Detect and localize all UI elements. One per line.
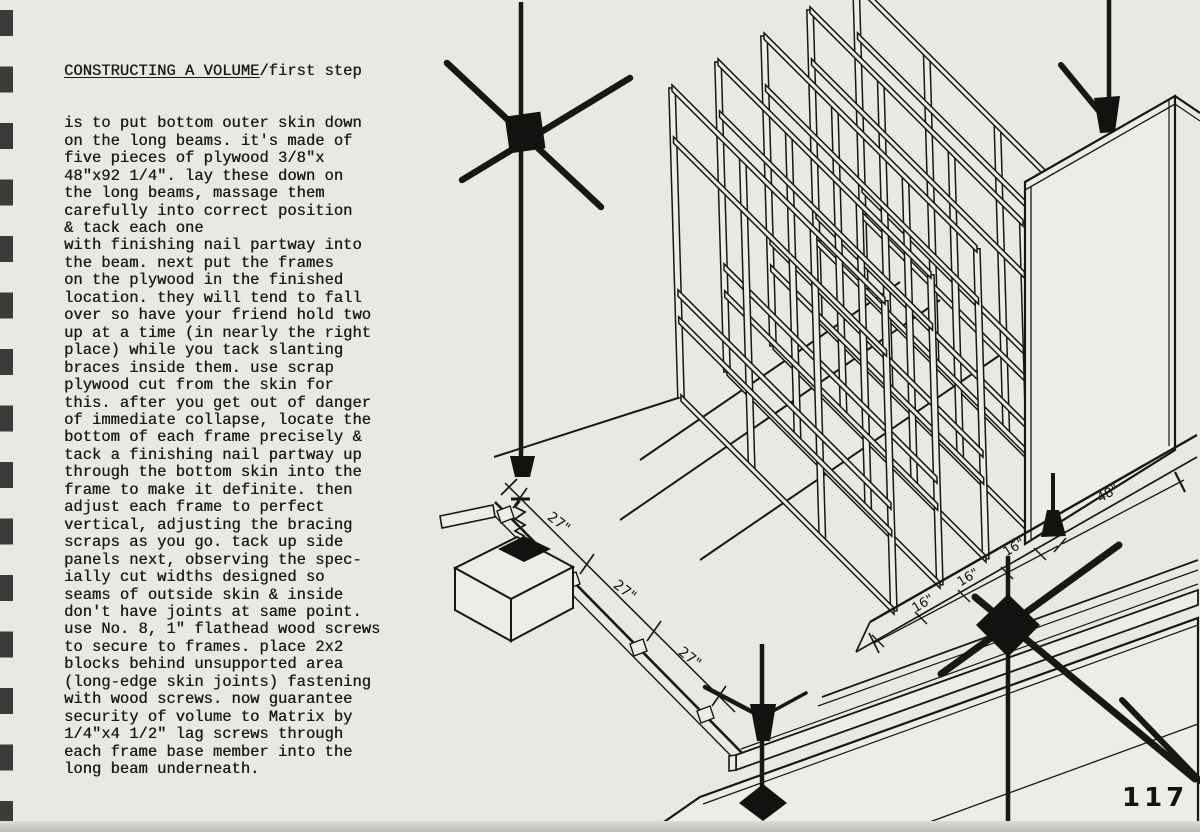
page-number: 117 — [1122, 783, 1188, 813]
screw-thread — [515, 501, 525, 541]
page-edge-shadow — [0, 821, 1200, 832]
long-beam-end — [440, 505, 495, 528]
frame-member — [715, 62, 730, 372]
dimension-label-27-1: 27" — [544, 509, 573, 537]
book-page: CONSTRUCTING A VOLUME/first step is to p… — [0, 0, 1200, 832]
frame-member — [669, 88, 684, 398]
isometric-construction-diagram: 27" 27" 27" 16" 16" 16" 48" — [0, 0, 1200, 832]
x-connector-top-left — [447, 2, 630, 477]
dimension-label-27-3: 27" — [675, 644, 704, 672]
dimension-label-27-2: 27" — [610, 577, 639, 605]
dimension-label-16-2: 16" — [955, 566, 982, 590]
x-connector-top-right — [1061, 0, 1120, 133]
stud-frames — [669, 0, 1081, 614]
frame-member — [856, 0, 1069, 200]
